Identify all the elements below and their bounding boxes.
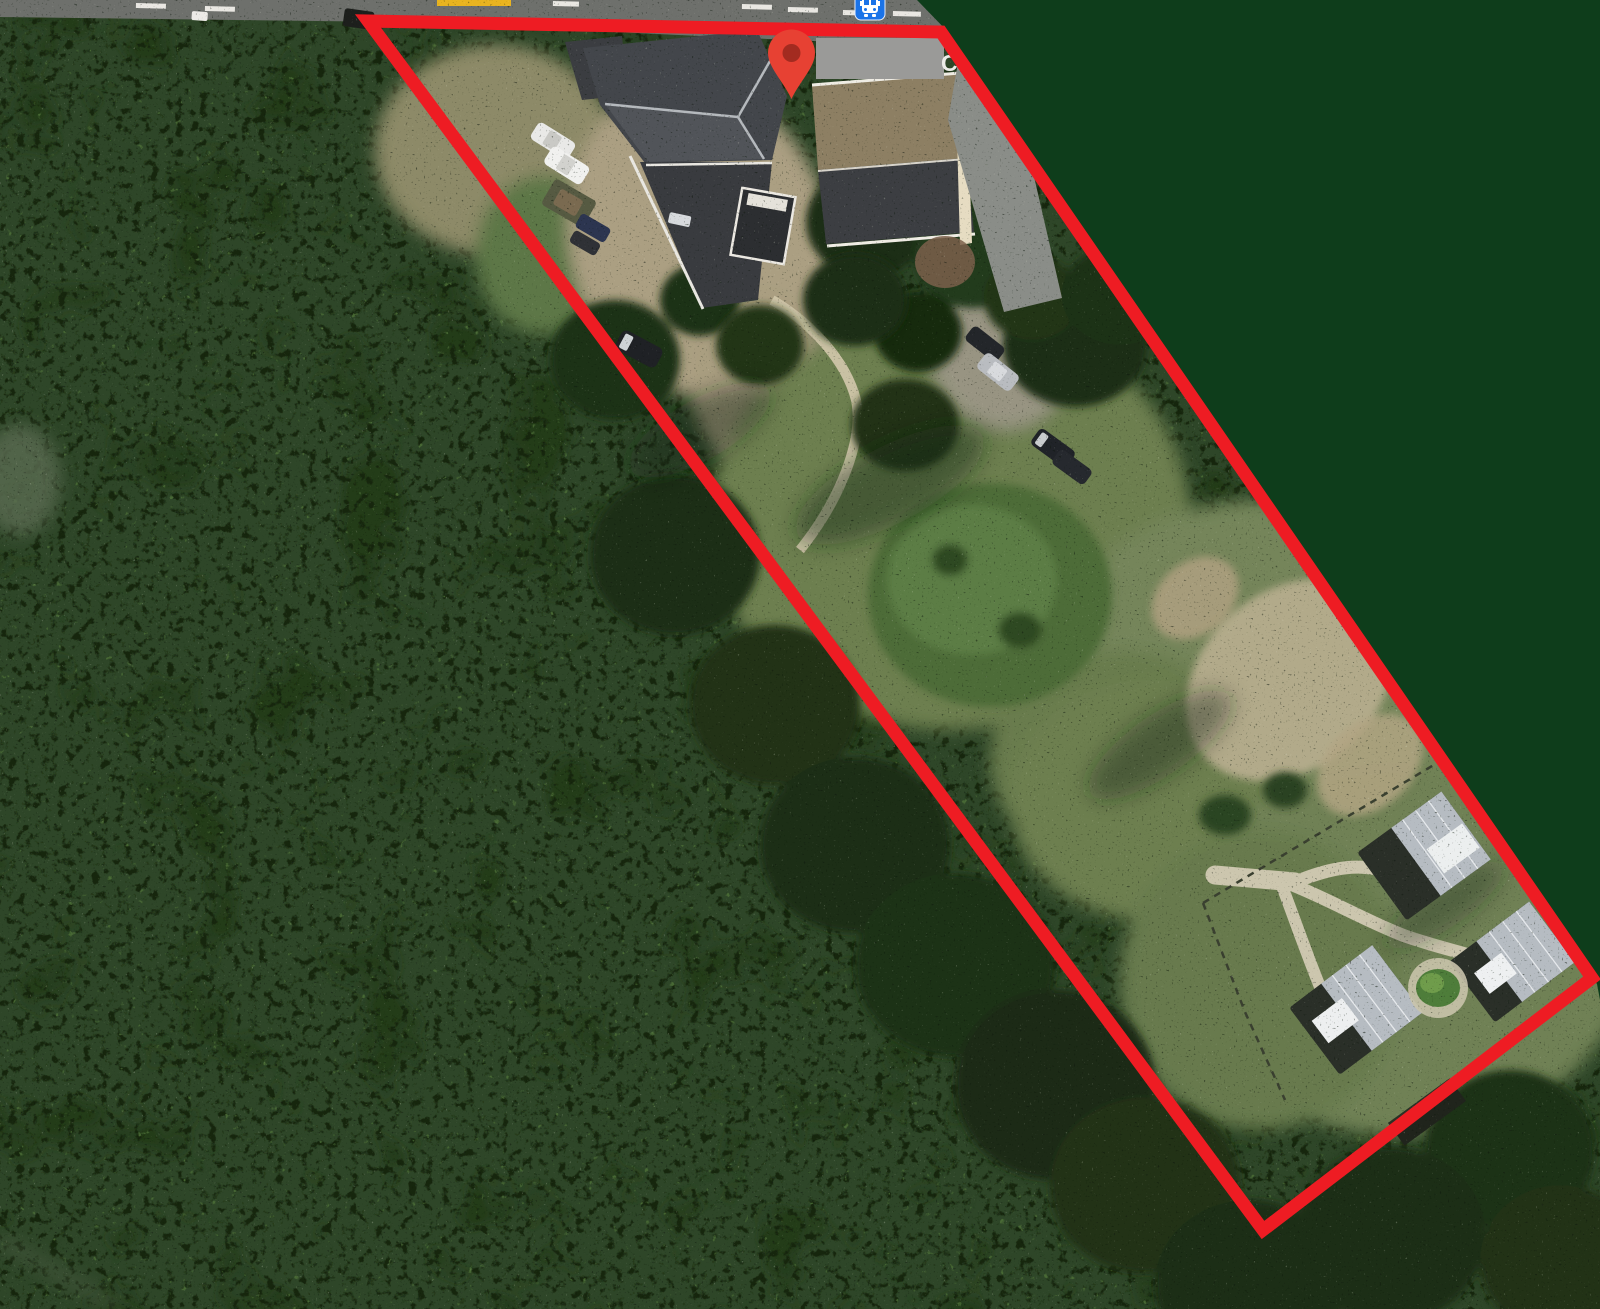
bus-stop-icon[interactable] bbox=[855, 0, 885, 20]
privacy-blur-rect bbox=[816, 38, 944, 79]
satellite-map[interactable]: C bbox=[0, 0, 1600, 1309]
map-viewport[interactable]: C bbox=[0, 0, 1600, 1309]
